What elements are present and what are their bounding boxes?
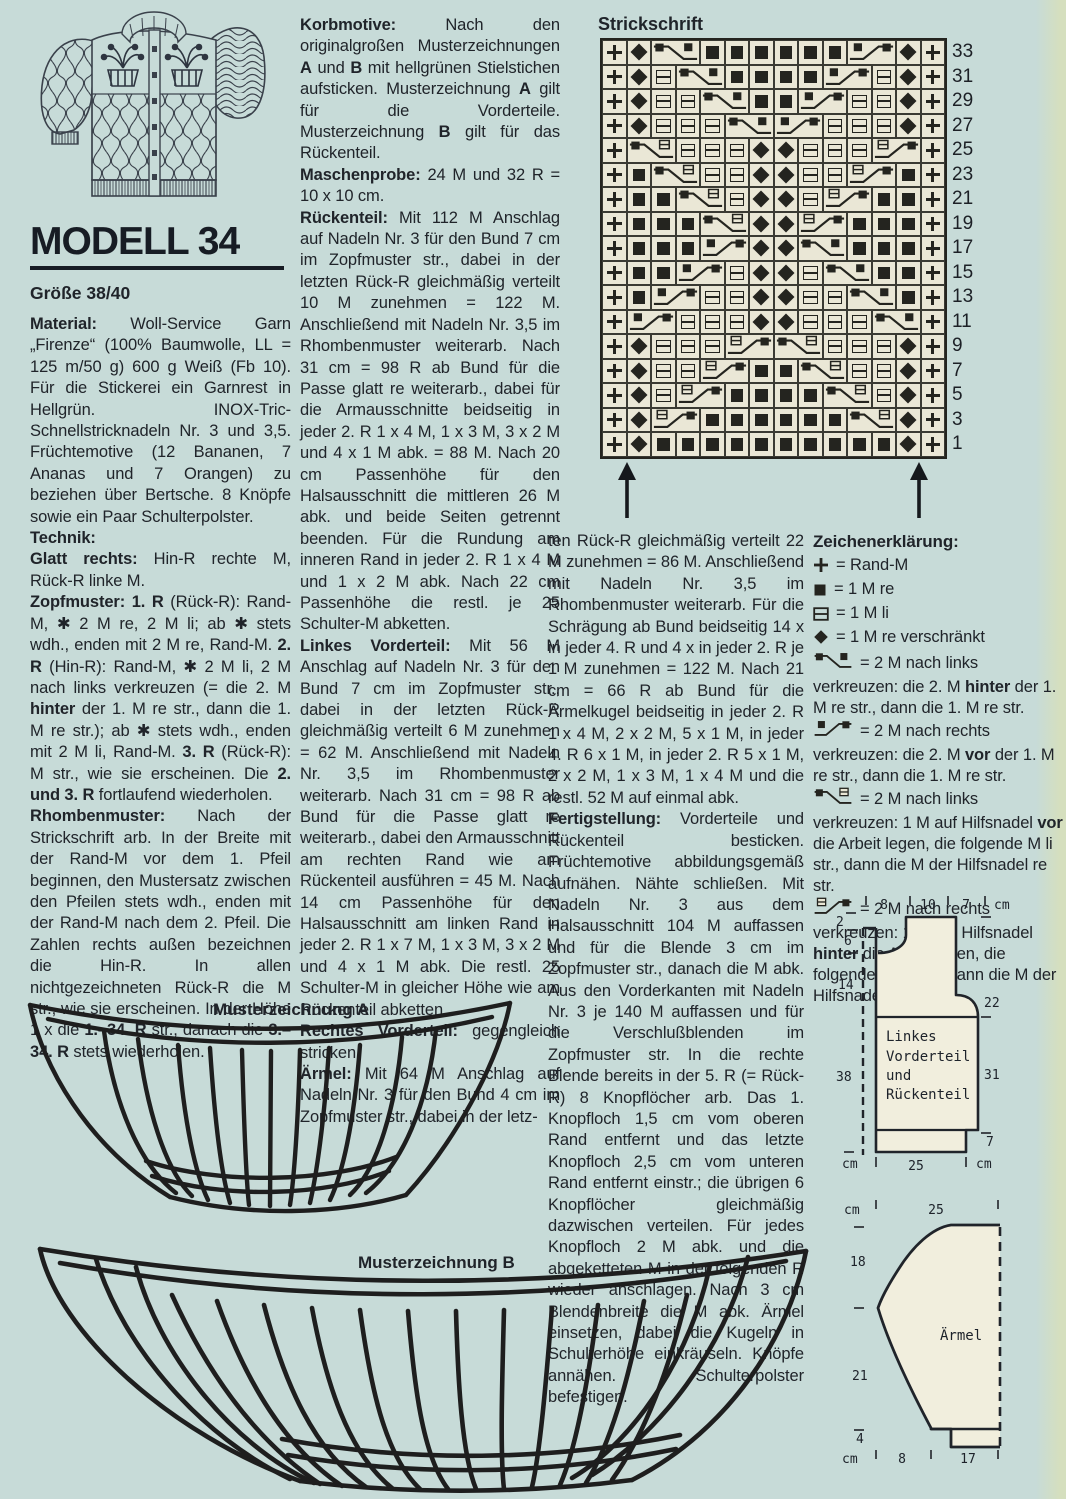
chart-symbol-knit-right (774, 40, 799, 65)
chart-symbol-knit-right (651, 212, 676, 237)
chart-symbol-cable-2-right (651, 285, 700, 310)
paragraph: Linkes Vorderteil: Mit 56 M Anschlag auf… (300, 636, 560, 1021)
chart-symbol-knit-twisted (896, 65, 921, 90)
chart-symbol-rand-stitch (921, 261, 946, 286)
embroidery-drawing-b (32, 1233, 820, 1497)
chart-symbol-knit-twisted (749, 285, 774, 310)
svg-text:Vorderteil: Vorderteil (886, 1049, 970, 1065)
chart-symbol-knit-right (774, 65, 799, 90)
left-column: Material: Woll-Service Garn „Firenze“ (1… (30, 314, 291, 1063)
svg-text:8: 8 (880, 898, 888, 913)
chart-symbol-purl-left (847, 310, 872, 335)
chart-symbol-purl-left (798, 261, 823, 286)
chart-symbol-rand-stitch (602, 285, 627, 310)
chart-symbol-knit-right (774, 89, 799, 114)
chart-symbol-knit-right (896, 261, 921, 286)
paragraph: Rückenteil: Mit 112 M Anschlag auf Nadel… (300, 208, 560, 636)
legend-item-twist: = 1 M re verschränkt (813, 627, 1063, 651)
chart-symbol-knit-twisted (896, 359, 921, 384)
chart-symbol-cable-2-left-purl (847, 408, 896, 433)
chart-symbol-purl-left (823, 163, 848, 188)
svg-text:4: 4 (856, 1432, 864, 1447)
purl-symbol-icon (813, 606, 829, 627)
chart-symbol-purl-left (847, 114, 872, 139)
chart-symbol-cable-2-left-purl (676, 187, 725, 212)
chart-symbol-purl-left (651, 65, 676, 90)
embroidery-drawing-a (18, 993, 526, 1245)
chart-symbol-cable-2-right-purl (823, 187, 872, 212)
chart-symbol-rand-stitch (602, 334, 627, 359)
chart-symbol-knit-twisted (627, 334, 652, 359)
chart-symbol-knit-right (872, 261, 897, 286)
chart-symbol-purl-left (700, 114, 725, 139)
paragraph: Glatt rechts: Hin-R rechte M, Rück-R lin… (30, 549, 291, 592)
chart-symbol-purl-left (725, 163, 750, 188)
chart-symbol-cable-2-left-purl (798, 359, 847, 384)
chart-symbol-cable-2-right (774, 114, 823, 139)
chart-symbol-knit-right (749, 408, 774, 433)
chart-symbol-knit-twisted (896, 432, 921, 457)
paragraph: Maschenprobe: 24 M und 32 R = 10 x 10 cm… (300, 165, 560, 208)
chart-symbol-knit-right (749, 89, 774, 114)
chart-symbol-knit-twisted (749, 236, 774, 261)
chart-row-number: 17 (952, 236, 973, 261)
chart-symbol-knit-twisted (774, 236, 799, 261)
chart-symbol-knit-right (749, 40, 774, 65)
chart-symbol-purl-left (725, 187, 750, 212)
chart-symbol-purl-left (725, 261, 750, 286)
chart-symbol-rand-stitch (921, 383, 946, 408)
chart-symbol-knit-right (725, 432, 750, 457)
chart-symbol-purl-left (823, 310, 848, 335)
chart-symbol-knit-twisted (627, 432, 652, 457)
chart-symbol-rand-stitch (602, 261, 627, 286)
chart-symbol-purl-left (651, 383, 676, 408)
chart-symbol-knit-right (823, 432, 848, 457)
chart-symbol-knit-right (651, 187, 676, 212)
chart-symbol-rand-stitch (921, 114, 946, 139)
chart-symbol-knit-twisted (774, 138, 799, 163)
chart-symbol-rand-stitch (921, 310, 946, 335)
legend-item-Lkk: = 2 M nach links verkreuzen: die 2. M hi… (813, 651, 1063, 719)
chart-symbol-knit-right (823, 40, 848, 65)
chart-symbol-cable-2-right-purl (651, 408, 700, 433)
svg-text:18: 18 (850, 1255, 866, 1270)
chart-symbol-knit-twisted (774, 212, 799, 237)
chart-symbol-knit-right (725, 383, 750, 408)
chart-symbol-purl-left (872, 359, 897, 384)
chart-symbol-purl-left (847, 359, 872, 384)
chart-symbol-knit-right (872, 236, 897, 261)
svg-text:17: 17 (960, 1452, 976, 1467)
chart-symbol-purl-left (676, 334, 701, 359)
svg-text:Ärmel: Ärmel (940, 1326, 982, 1344)
chart-symbol-knit-right (627, 236, 652, 261)
paragraph: Material: Woll-Service Garn „Firenze“ (1… (30, 314, 291, 528)
chart-row-number: 31 (952, 65, 973, 90)
svg-text:7: 7 (962, 898, 970, 913)
chart-symbol-purl-left (798, 187, 823, 212)
chart-symbol-knit-twisted (896, 383, 921, 408)
chart-symbol-knit-right (774, 432, 799, 457)
chart-symbol-purl-left (676, 138, 701, 163)
chart-symbol-knit-right (627, 285, 652, 310)
chart-symbol-purl-left (823, 114, 848, 139)
chart-symbol-knit-right (700, 40, 725, 65)
chart-symbol-purl-left (872, 334, 897, 359)
chart-symbol-knit-twisted (627, 408, 652, 433)
chart-symbol-knit-right (725, 40, 750, 65)
chart-symbol-knit-twisted (749, 261, 774, 286)
chart-symbol-knit-right (774, 408, 799, 433)
chart-symbol-knit-right (774, 359, 799, 384)
sweater-photo-illustration (12, 2, 270, 217)
chart-symbol-cable-2-right-purl (798, 212, 847, 237)
chart-symbol-knit-right (823, 408, 848, 433)
chart-row-number: 27 (952, 114, 973, 139)
chart-row-number: 25 (952, 138, 973, 163)
Rkk-symbol-icon (813, 719, 853, 745)
chart-symbol-knit-twisted (749, 163, 774, 188)
magazine-page: MODELL 34 Größe 38/40 Material: Woll-Ser… (0, 0, 1066, 1499)
chart-symbol-cable-2-left (725, 114, 774, 139)
paragraph: Technik: (30, 528, 291, 549)
svg-text:25: 25 (908, 1159, 924, 1174)
chart-symbol-cable-2-right (627, 310, 676, 335)
chart-symbol-rand-stitch (602, 212, 627, 237)
chart-symbol-knit-right (896, 187, 921, 212)
chart-symbol-knit-right (798, 383, 823, 408)
chart-symbol-rand-stitch (602, 236, 627, 261)
chart-symbol-rand-stitch (921, 187, 946, 212)
chart-symbol-purl-left (700, 285, 725, 310)
svg-text:38: 38 (836, 1070, 852, 1085)
chart-symbol-knit-twisted (896, 89, 921, 114)
chart-symbol-knit-twisted (774, 310, 799, 335)
legend-title: Zeichenerklärung: (813, 531, 1063, 552)
chart-symbol-knit-right (896, 285, 921, 310)
chart-symbol-knit-right (651, 432, 676, 457)
chart-symbol-cable-2-right (847, 40, 896, 65)
chart-row-number: 11 (952, 310, 973, 335)
chart-symbol-cable-2-left (847, 285, 896, 310)
chart-symbol-purl-left (847, 89, 872, 114)
svg-text:22: 22 (984, 996, 1000, 1011)
chart-symbol-purl-left (847, 138, 872, 163)
Lkk-symbol-icon (813, 651, 853, 677)
chart-symbol-cable-2-left (798, 236, 847, 261)
paragraph: ten Rück-R gleichmäßig verteilt 22 M zun… (548, 531, 804, 809)
chart-symbol-cable-2-right (823, 65, 872, 90)
chart-symbol-knit-right (872, 212, 897, 237)
paragraph: Korbmotive: Nach den originalgroßen Must… (300, 15, 560, 165)
chart-symbol-purl-left (798, 310, 823, 335)
chart-row-number: 13 (952, 285, 973, 310)
svg-text:und: und (886, 1068, 911, 1084)
svg-text:6: 6 (844, 934, 852, 949)
chart-symbol-knit-twisted (749, 310, 774, 335)
svg-text:cm: cm (976, 1157, 992, 1172)
chart-symbol-rand-stitch (602, 310, 627, 335)
chart-symbol-purl-left (651, 334, 676, 359)
chart-symbol-knit-twisted (774, 285, 799, 310)
svg-text:25: 25 (928, 1203, 944, 1218)
chart-symbol-knit-right (798, 65, 823, 90)
chart-symbol-knit-right (847, 236, 872, 261)
pattern-repeat-arrow-right (908, 462, 930, 520)
chart-row-numbers: 33312927252321191715131197531 (952, 40, 973, 457)
svg-text:8: 8 (898, 1452, 906, 1467)
chart-symbol-knit-right (725, 408, 750, 433)
chart-symbol-purl-left (651, 114, 676, 139)
chart-row-number: 33 (952, 40, 973, 65)
chart-symbol-purl-left (651, 359, 676, 384)
chart-symbol-cable-2-right (798, 89, 847, 114)
chart-symbol-rand-stitch (921, 408, 946, 433)
chart-symbol-knit-right (627, 261, 652, 286)
chart-symbol-purl-left (651, 89, 676, 114)
chart-symbol-rand-stitch (602, 40, 627, 65)
legend-item-rand: = Rand-M (813, 555, 1063, 579)
model-title: MODELL 34 (30, 220, 239, 264)
chart-symbol-knit-twisted (749, 138, 774, 163)
chart-symbol-knit-right (847, 432, 872, 457)
chart-symbol-cable-2-left (823, 261, 872, 286)
chart-symbol-knit-right (749, 359, 774, 384)
chart-symbol-knit-twisted (774, 261, 799, 286)
chart-symbol-rand-stitch (602, 114, 627, 139)
rand-symbol-icon (813, 557, 829, 579)
chart-row-number: 21 (952, 187, 973, 212)
chart-symbol-cable-2-right-purl (725, 334, 774, 359)
knit-symbol-icon (813, 582, 827, 603)
chart-row-number: 23 (952, 163, 973, 188)
chart-symbol-purl-left (676, 359, 701, 384)
chart-symbol-rand-stitch (921, 138, 946, 163)
chart-symbol-knit-right (798, 408, 823, 433)
chart-symbol-knit-right (627, 163, 652, 188)
chart-symbol-knit-right (676, 432, 701, 457)
chart-symbol-purl-left (798, 138, 823, 163)
chart-symbol-purl-left (872, 65, 897, 90)
svg-text:cm: cm (842, 1452, 858, 1467)
svg-text:14: 14 (838, 978, 854, 993)
svg-text:cm: cm (842, 1157, 858, 1172)
chart-symbol-purl-left (798, 285, 823, 310)
chart-symbol-cable-2-left-purl (774, 334, 823, 359)
chart-symbol-cable-2-left (872, 310, 921, 335)
chart-symbol-knit-twisted (627, 40, 652, 65)
chart-symbol-purl-left (847, 334, 872, 359)
chart-row-number: 9 (952, 334, 973, 359)
chart-symbol-rand-stitch (921, 65, 946, 90)
chart-row-number: 1 (952, 432, 973, 457)
middle-column: Korbmotive: Nach den originalgroßen Must… (300, 15, 560, 1128)
chart-symbol-knit-right (749, 65, 774, 90)
chart-symbol-knit-right (774, 383, 799, 408)
svg-text:7: 7 (986, 1135, 994, 1150)
chart-symbol-purl-left (676, 114, 701, 139)
chart-title: Strickschrift (598, 14, 703, 35)
chart-symbol-rand-stitch (602, 383, 627, 408)
schematic-front-back: 8 10 7 cm 2 6 14 38 22 31 7 cm 25 cm Lin… (828, 883, 1066, 1183)
paragraph: Zopfmuster: 1. R (Rück-R): Rand-M, ✱ 2 M… (30, 592, 291, 806)
chart-symbol-purl-left (823, 138, 848, 163)
chart-symbol-knit-twisted (896, 408, 921, 433)
chart-symbol-knit-right (627, 187, 652, 212)
chart-symbol-knit-right (749, 383, 774, 408)
chart-symbol-knit-twisted (896, 114, 921, 139)
chart-symbol-rand-stitch (602, 408, 627, 433)
chart-symbol-cable-2-left-purl (823, 383, 872, 408)
chart-symbol-purl-left (676, 89, 701, 114)
chart-symbol-cable-2-right-purl (700, 359, 749, 384)
chart-symbol-cable-2-right-purl (676, 383, 725, 408)
chart-symbol-knit-right (749, 432, 774, 457)
chart-symbol-rand-stitch (602, 138, 627, 163)
chart-symbol-purl-left (700, 310, 725, 335)
chart-symbol-knit-twisted (627, 89, 652, 114)
chart-symbol-purl-left (725, 138, 750, 163)
chart-symbol-purl-left (700, 334, 725, 359)
chart-row-number: 7 (952, 359, 973, 384)
chart-symbol-knit-right (627, 212, 652, 237)
svg-text:Rückenteil: Rückenteil (886, 1087, 970, 1103)
size-label: Größe 38/40 (30, 283, 130, 304)
chart-symbol-purl-left (798, 163, 823, 188)
chart-symbol-purl-left (725, 310, 750, 335)
chart-symbol-cable-2-right-purl (847, 163, 896, 188)
chart-symbol-knit-right (896, 212, 921, 237)
pattern-repeat-arrow-left (616, 462, 638, 520)
legend-item-Lkp: = 2 M nach links verkreuzen: 1 M auf Hil… (813, 787, 1063, 897)
svg-text:31: 31 (984, 1068, 1000, 1083)
chart-symbol-rand-stitch (921, 359, 946, 384)
chart-row-number: 5 (952, 383, 973, 408)
chart-row-number: 3 (952, 408, 973, 433)
chart-symbol-purl-left (872, 89, 897, 114)
svg-text:cm: cm (844, 1203, 860, 1218)
chart-symbol-rand-stitch (921, 432, 946, 457)
chart-symbol-knit-twisted (749, 187, 774, 212)
chart-symbol-knit-twisted (896, 334, 921, 359)
svg-text:2: 2 (836, 915, 844, 930)
chart-symbol-rand-stitch (921, 163, 946, 188)
chart-symbol-knit-right (847, 212, 872, 237)
Lkp-symbol-icon (813, 787, 853, 813)
svg-text:10: 10 (920, 898, 936, 913)
svg-text:Linkes: Linkes (886, 1029, 937, 1045)
chart-row-number: 29 (952, 89, 973, 114)
legend-item-purl: = 1 M li (813, 603, 1063, 627)
chart-symbol-cable-2-right (700, 236, 749, 261)
chart-symbol-knit-twisted (627, 383, 652, 408)
chart-symbol-knit-right (896, 163, 921, 188)
knitting-chart (600, 38, 947, 459)
chart-symbol-knit-twisted (896, 40, 921, 65)
chart-symbol-purl-left (872, 114, 897, 139)
chart-symbol-cable-2-left-purl (700, 212, 749, 237)
chart-symbol-purl-left (700, 163, 725, 188)
chart-symbol-rand-stitch (921, 334, 946, 359)
chart-symbol-cable-2-left (676, 65, 725, 90)
twist-symbol-icon (813, 629, 829, 651)
chart-symbol-rand-stitch (602, 65, 627, 90)
chart-symbol-rand-stitch (921, 89, 946, 114)
chart-symbol-knit-twisted (627, 65, 652, 90)
chart-symbol-cable-2-left-purl (651, 163, 700, 188)
chart-symbol-purl-left (725, 285, 750, 310)
chart-symbol-rand-stitch (602, 359, 627, 384)
chart-symbol-knit-right (700, 408, 725, 433)
chart-row-number: 19 (952, 212, 973, 237)
chart-symbol-knit-right (896, 236, 921, 261)
chart-symbol-rand-stitch (921, 236, 946, 261)
legend-item-knit: = 1 M re (813, 579, 1063, 603)
chart-symbol-purl-left (823, 334, 848, 359)
chart-symbol-purl-left (700, 138, 725, 163)
chart-symbol-rand-stitch (602, 89, 627, 114)
chart-symbol-knit-right (872, 187, 897, 212)
chart-row-number: 15 (952, 261, 973, 286)
chart-symbol-rand-stitch (921, 285, 946, 310)
chart-symbol-cable-2-left-purl (627, 138, 676, 163)
chart-symbol-knit-right (872, 432, 897, 457)
svg-text:cm: cm (994, 898, 1010, 913)
chart-symbol-rand-stitch (921, 40, 946, 65)
chart-symbol-knit-twisted (749, 212, 774, 237)
chart-symbol-purl-left (823, 285, 848, 310)
chart-symbol-knit-right (798, 40, 823, 65)
chart-symbol-knit-right (676, 212, 701, 237)
chart-symbol-cable-2-left (700, 89, 749, 114)
legend-item-Rkk: = 2 M nach rechts verkreuzen: die 2. M v… (813, 719, 1063, 787)
chart-symbol-knit-right (651, 261, 676, 286)
title-rule (30, 266, 284, 270)
chart-symbol-knit-twisted (774, 187, 799, 212)
chart-symbol-knit-right (700, 432, 725, 457)
chart-symbol-rand-stitch (602, 187, 627, 212)
chart-symbol-rand-stitch (921, 212, 946, 237)
svg-text:21: 21 (852, 1369, 868, 1384)
chart-symbol-knit-right (798, 432, 823, 457)
schematic-sleeve: cm 25 18 21 4 cm 8 17 Ärmel (828, 1190, 1066, 1490)
chart-symbol-cable-2-right-purl (872, 138, 921, 163)
chart-symbol-cable-2-left (651, 40, 700, 65)
chart-symbol-purl-left (872, 383, 897, 408)
chart-symbol-cable-2-right (676, 261, 725, 286)
chart-symbol-knit-twisted (774, 163, 799, 188)
chart-symbol-knit-twisted (627, 114, 652, 139)
chart-symbol-knit-right (725, 65, 750, 90)
chart-symbol-purl-left (676, 310, 701, 335)
chart-symbol-knit-right (676, 236, 701, 261)
chart-symbol-knit-twisted (627, 359, 652, 384)
chart-symbol-knit-right (651, 236, 676, 261)
chart-symbol-rand-stitch (602, 163, 627, 188)
chart-symbol-rand-stitch (602, 432, 627, 457)
